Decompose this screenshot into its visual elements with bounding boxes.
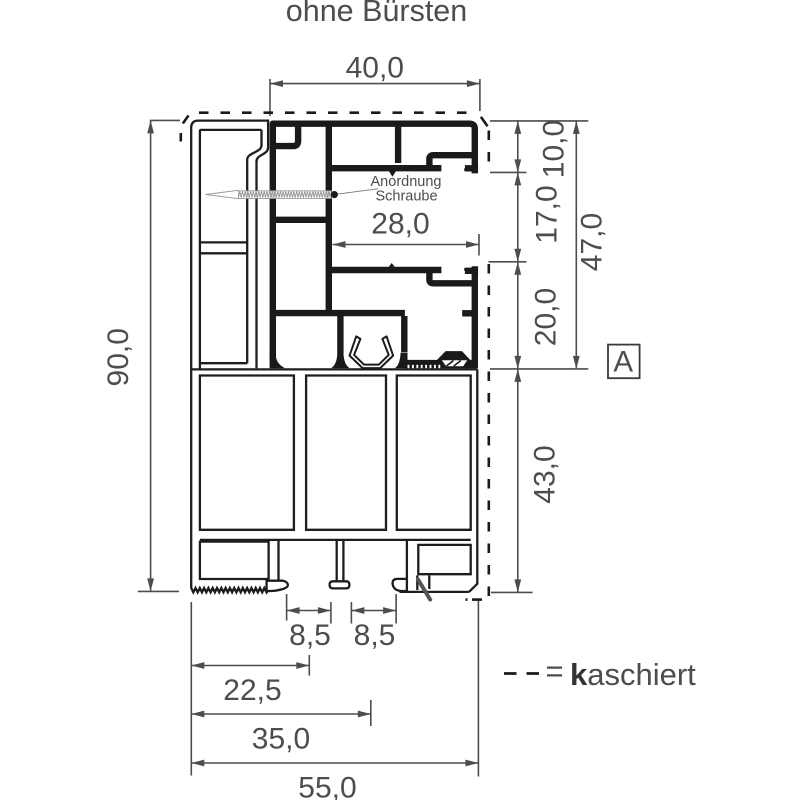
svg-text:90,0: 90,0 — [102, 328, 135, 386]
svg-text:Schraube: Schraube — [375, 189, 437, 205]
svg-text:43,0: 43,0 — [529, 445, 562, 503]
svg-text:47,0: 47,0 — [576, 213, 609, 271]
svg-text:40,0: 40,0 — [346, 52, 404, 85]
svg-text:8,5: 8,5 — [289, 619, 331, 652]
svg-text:17,0: 17,0 — [531, 185, 564, 243]
svg-text:10,0: 10,0 — [538, 120, 571, 178]
svg-text:55,0: 55,0 — [298, 772, 356, 800]
svg-text:35,0: 35,0 — [252, 723, 310, 756]
svg-text:8,5: 8,5 — [354, 619, 396, 652]
svg-text:ohne Bürsten: ohne Bürsten — [286, 0, 467, 28]
svg-text:=: = — [546, 654, 564, 689]
svg-text:A: A — [613, 346, 633, 379]
svg-text:20,0: 20,0 — [530, 288, 563, 346]
svg-text:kaschiert: kaschiert — [570, 657, 696, 692]
svg-text:28,0: 28,0 — [371, 208, 429, 241]
svg-text:22,5: 22,5 — [223, 674, 281, 707]
